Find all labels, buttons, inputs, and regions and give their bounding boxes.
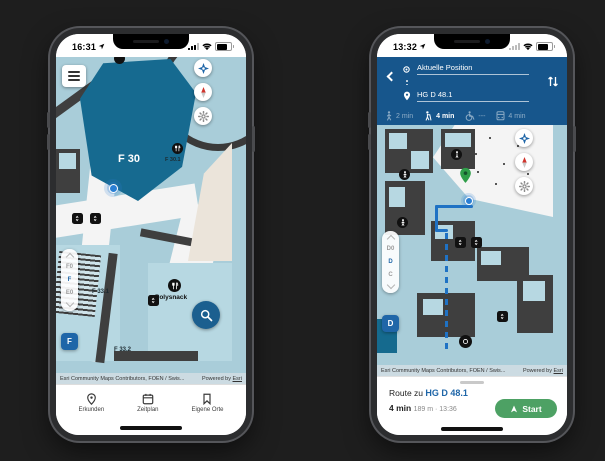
menu-button[interactable] — [62, 65, 86, 87]
settings-gear-button[interactable] — [515, 177, 533, 195]
home-bar — [56, 421, 246, 435]
restaurant-icon[interactable] — [168, 279, 181, 292]
phone-notch — [113, 34, 189, 49]
destination-field[interactable]: HG D 48.1 — [417, 90, 529, 102]
person-icon[interactable] — [397, 217, 408, 228]
map-view[interactable]: D0 D C D — [377, 125, 567, 365]
route-form-panel: Aktuelle Position HG D 48.1 2 min 4 min — [377, 57, 567, 125]
pin-icon — [86, 393, 97, 405]
origin-icon — [402, 65, 411, 74]
wifi-icon — [202, 43, 212, 51]
map-room — [481, 251, 501, 265]
map-room-label: F 30 — [118, 153, 140, 165]
back-button[interactable] — [387, 72, 397, 82]
elevator-icon[interactable] — [497, 311, 508, 322]
attribution-text: Esri Community Maps Contributors, FOEN /… — [60, 376, 184, 382]
map-room — [411, 151, 429, 169]
restaurant-icon[interactable] — [172, 143, 183, 154]
home-bar — [377, 423, 567, 435]
signal-icon — [509, 43, 520, 50]
floor-item-below[interactable]: E0 — [66, 287, 73, 299]
settings-gear-icon — [519, 181, 530, 192]
location-services-icon — [98, 43, 105, 50]
chevron-down-icon[interactable] — [65, 299, 73, 307]
floor-item-above[interactable]: F0 — [66, 261, 73, 273]
map-room — [389, 187, 405, 207]
esri-link[interactable]: Esri — [233, 376, 242, 382]
elevator-icon[interactable] — [455, 237, 466, 248]
wheelchair-icon — [465, 111, 475, 121]
locate-compass-icon — [519, 133, 530, 144]
destination-icon — [403, 91, 411, 101]
tab-erkunden[interactable]: Erkunden — [78, 393, 104, 413]
map-room — [389, 133, 407, 149]
navigate-icon — [510, 405, 518, 413]
tab-zeitplan[interactable]: Zeitplan — [137, 393, 158, 413]
signal-icon — [188, 43, 199, 50]
public-transit-icon — [496, 111, 505, 121]
floor-item-above[interactable]: D0 — [387, 243, 395, 255]
person-icon[interactable] — [451, 149, 462, 160]
map-view[interactable]: F 30 F 30.1 Polysnack F 33.1 — [56, 57, 246, 373]
calendar-icon — [142, 393, 154, 405]
route-connector-dots — [406, 80, 408, 85]
route-details: 4 min 189 m · 13:36 — [389, 403, 457, 413]
route-line-dashed — [445, 233, 448, 353]
map-room-label: F 30.1 — [165, 157, 181, 163]
mode-reduced-mobility[interactable]: 4 min — [424, 111, 454, 121]
map-room-label: F 33.1 — [92, 289, 109, 295]
left-phone-frame: 16:31 — [50, 28, 252, 441]
settings-gear-icon — [198, 111, 209, 122]
floor-picker: D0 D C — [382, 231, 399, 293]
search-icon — [200, 309, 213, 322]
left-phone-screen: 16:31 — [56, 34, 246, 435]
battery-icon — [536, 42, 553, 51]
volume-up-button — [368, 112, 371, 128]
settings-gear-button[interactable] — [194, 107, 212, 125]
phone-notch — [434, 34, 510, 49]
volume-down-button — [368, 134, 371, 150]
wifi-icon — [523, 43, 533, 51]
swap-button[interactable] — [547, 75, 559, 91]
tab-bar: Erkunden Zeitplan Eigene Orte — [56, 384, 246, 421]
route-distance: 189 m — [414, 406, 433, 413]
chevron-up-icon[interactable] — [65, 253, 73, 261]
floor-item-below[interactable]: C — [388, 269, 392, 281]
map-attribution: Esri Community Maps Contributors, FOEN /… — [377, 365, 567, 376]
elevator-icon[interactable] — [90, 213, 101, 224]
right-phone-screen: 13:32 Aktuelle Position HG D 48.1 — [377, 34, 567, 435]
desktop-background: { "attribution": { "contributors": "Esri… — [0, 0, 605, 461]
pedestrian-icon — [385, 111, 393, 121]
floor-picker: F0 F E0 — [61, 249, 78, 311]
elevator-icon[interactable] — [72, 213, 83, 224]
map-room-label: F 33.2 — [114, 347, 131, 353]
route-line-solid — [435, 229, 448, 232]
current-position-dot — [461, 193, 476, 208]
floor-item-current[interactable]: D — [388, 256, 392, 268]
locate-compass-button[interactable] — [515, 129, 533, 147]
attribution-text: Esri Community Maps Contributors, FOEN /… — [381, 368, 505, 374]
map-room — [59, 153, 76, 169]
power-button — [573, 126, 576, 152]
chevron-down-icon[interactable] — [386, 281, 394, 289]
status-time: 16:31 — [72, 42, 96, 52]
powered-by: Powered by Esri — [202, 376, 242, 382]
current-floor-badge[interactable]: D — [382, 315, 399, 332]
floor-item-current[interactable]: F — [68, 274, 72, 286]
north-needle-icon — [199, 87, 208, 98]
battery-icon — [215, 42, 232, 51]
north-needle-button[interactable] — [515, 153, 533, 171]
location-services-icon — [419, 43, 426, 50]
north-needle-button[interactable] — [194, 83, 212, 101]
powered-by: Powered by Esri — [523, 368, 563, 374]
map-room — [445, 133, 471, 147]
locate-compass-icon — [198, 63, 209, 74]
home-indicator[interactable] — [120, 426, 182, 430]
reduced-mobility-icon — [424, 111, 433, 121]
volume-down-button — [47, 134, 50, 150]
route-destination: HG D 48.1 — [425, 388, 468, 398]
bookmark-icon — [202, 393, 212, 405]
person-icon[interactable] — [399, 169, 410, 180]
tab-eigene-orte[interactable]: Eigene Orte — [191, 393, 223, 413]
map-attribution: Esri Community Maps Contributors, FOEN /… — [56, 373, 246, 384]
search-button[interactable] — [192, 301, 220, 329]
status-time: 13:32 — [393, 42, 417, 52]
map-room — [523, 281, 545, 301]
map-cafe-label: Polysnack — [155, 294, 187, 301]
volume-up-button — [47, 112, 50, 128]
power-button — [252, 126, 255, 152]
current-floor-badge[interactable]: F — [61, 333, 78, 350]
swap-icon — [547, 75, 559, 88]
mode-pedestrian[interactable]: 2 min — [385, 111, 413, 121]
route-line-solid — [435, 205, 438, 232]
mode-wheelchair[interactable]: --- — [465, 111, 485, 121]
elevator-icon[interactable] — [471, 237, 482, 248]
route-summary-panel: Route zu HG D 48.1 4 min 189 m · 13:36 S… — [377, 376, 567, 423]
destination-pin-icon — [459, 167, 472, 184]
current-position-dot — [104, 179, 122, 197]
home-indicator[interactable] — [441, 427, 503, 431]
map-room — [423, 299, 443, 315]
locate-compass-button[interactable] — [194, 59, 212, 77]
origin-field[interactable]: Aktuelle Position — [417, 63, 529, 75]
drag-handle[interactable] — [460, 381, 484, 384]
north-needle-icon — [520, 157, 529, 168]
route-duration: 4 min — [389, 403, 411, 413]
route-arrival: 13:36 — [439, 406, 457, 413]
mode-public-transit[interactable]: 4 min — [496, 111, 525, 121]
map-poi-icon[interactable] — [459, 335, 472, 348]
route-title: Route zu HG D 48.1 — [389, 388, 468, 398]
right-phone-frame: 13:32 Aktuelle Position HG D 48.1 — [371, 28, 573, 441]
start-button[interactable]: Start — [495, 399, 557, 418]
chevron-up-icon[interactable] — [386, 235, 394, 243]
travel-mode-row: 2 min 4 min --- 4 min — [385, 111, 561, 121]
esri-link[interactable]: Esri — [554, 368, 563, 374]
